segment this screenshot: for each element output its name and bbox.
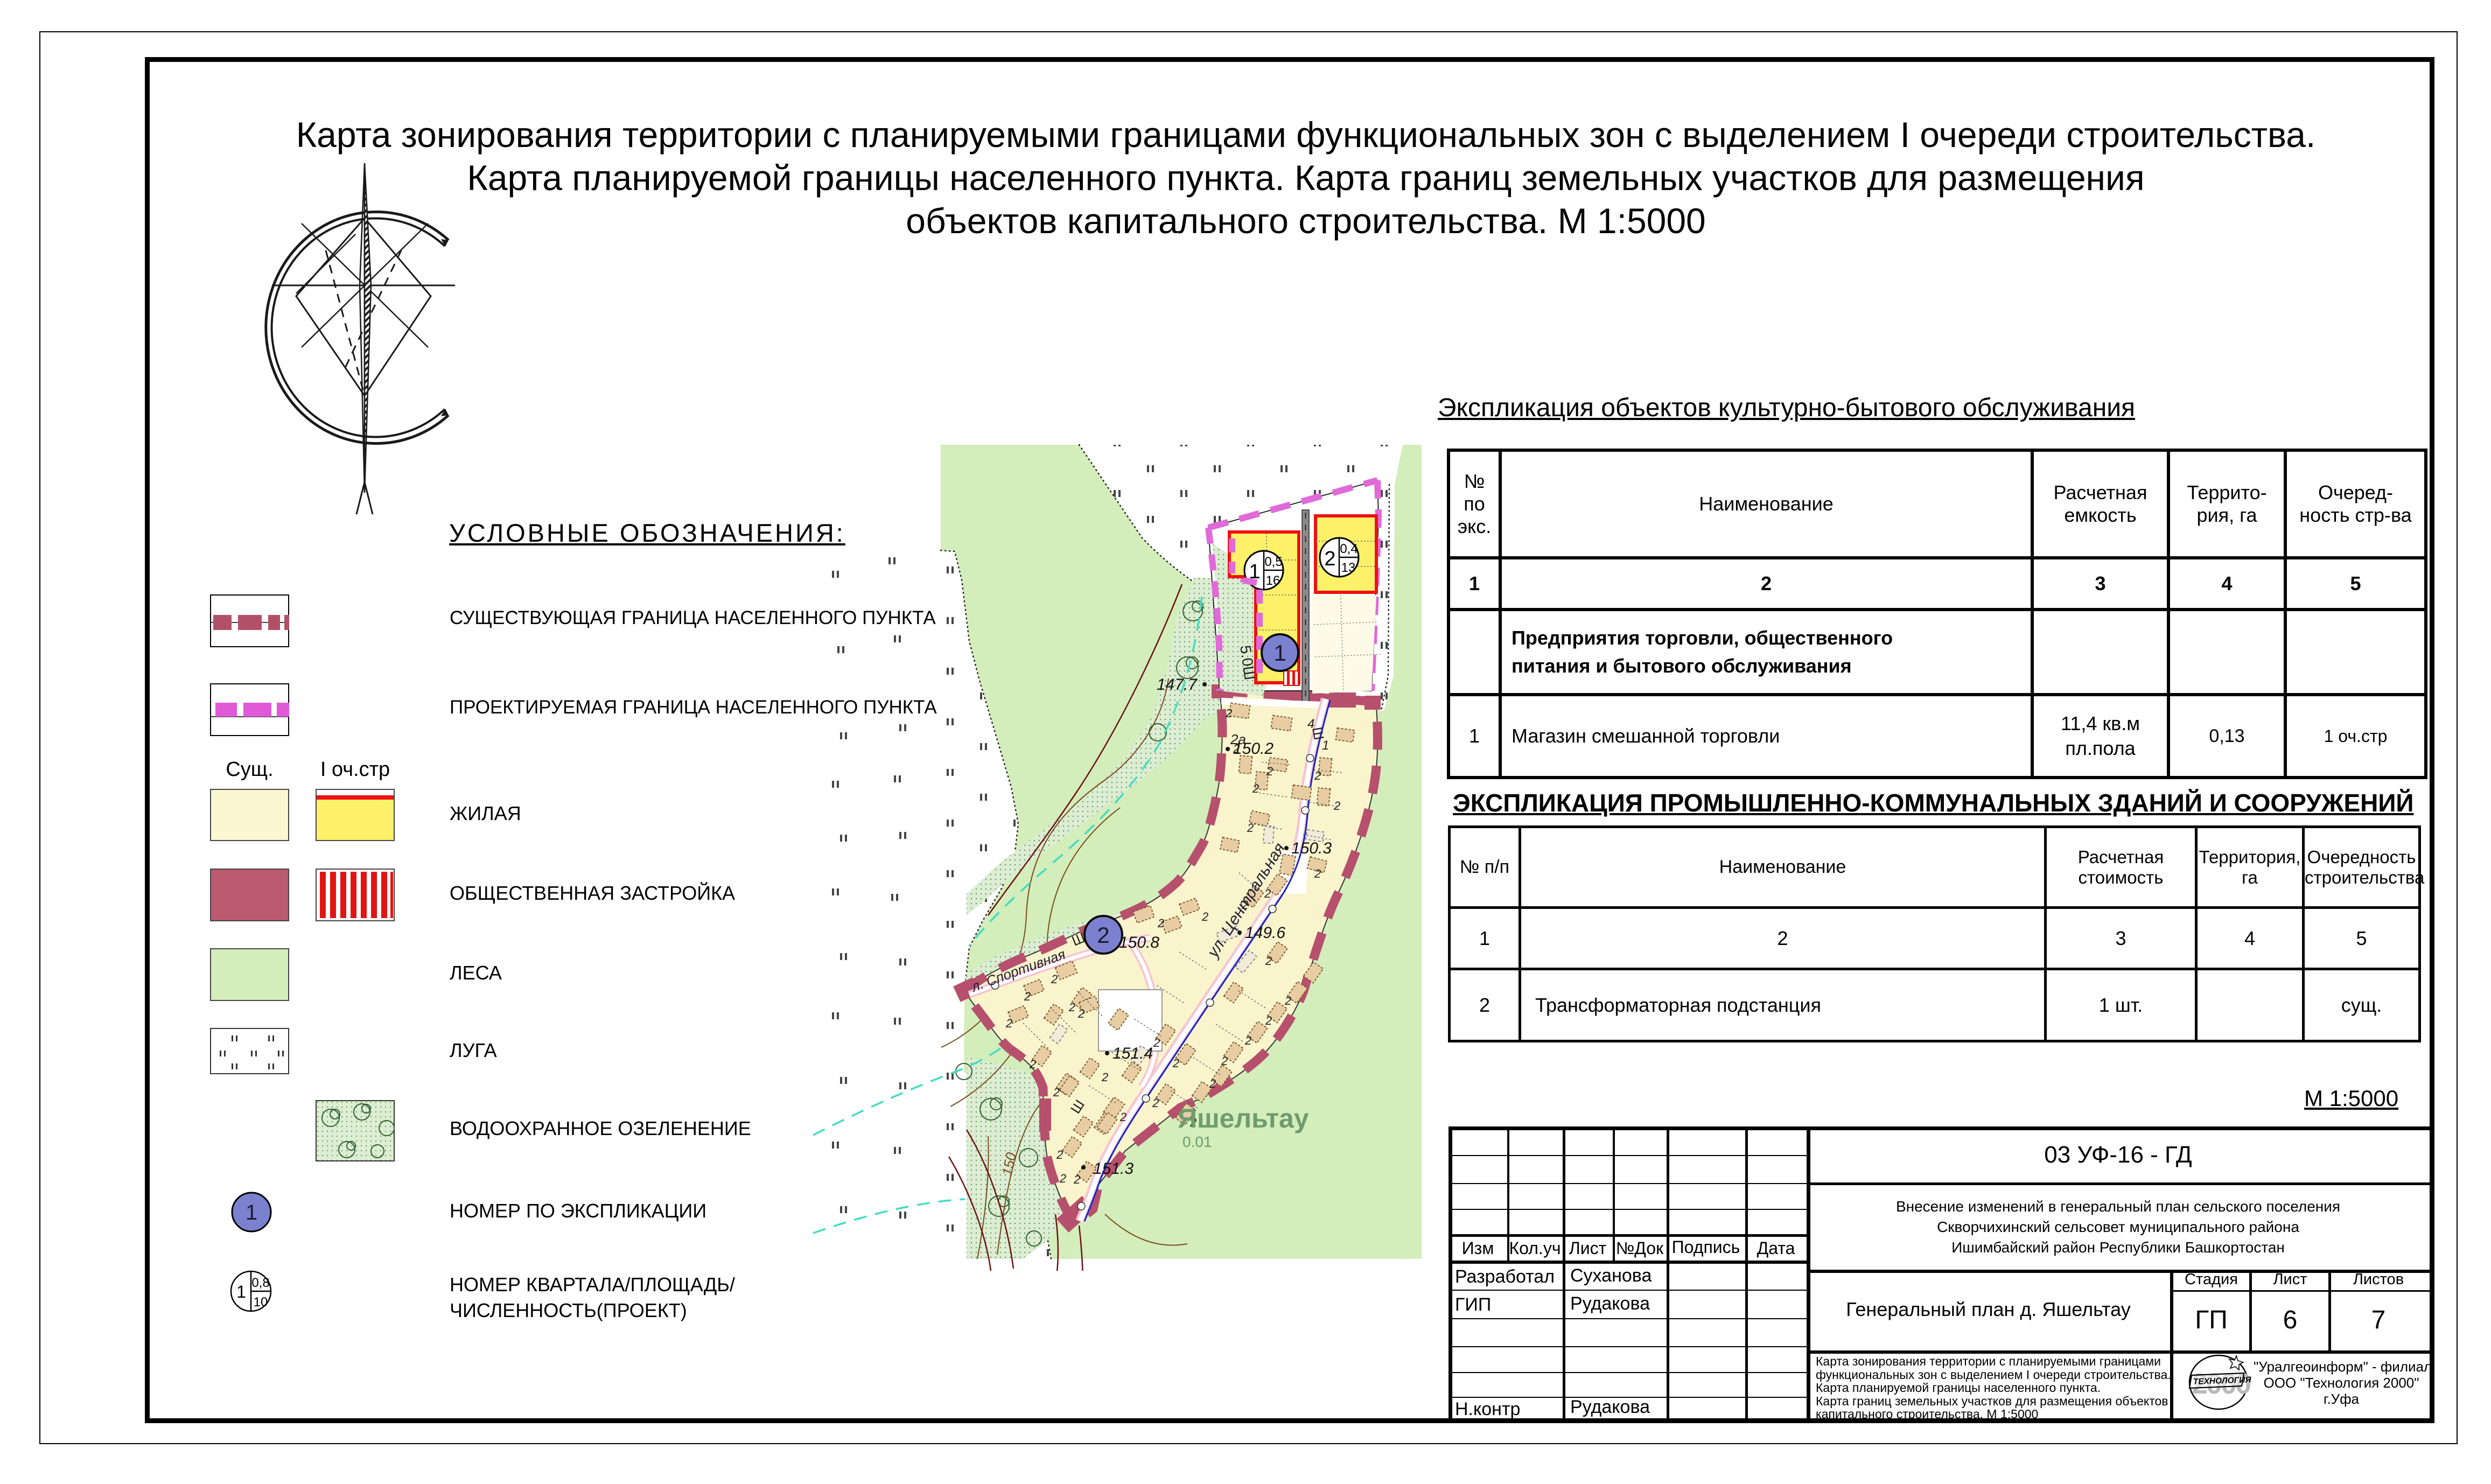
svg-text:150.8: 150.8 [1119,934,1159,951]
svg-text:2: 2 [1068,1000,1075,1014]
svg-text:2: 2 [1157,916,1164,930]
svg-text:2: 2 [1097,922,1109,948]
svg-text:Яшельтау: Яшельтау [1178,1103,1309,1133]
svg-text:2: 2 [1209,1077,1216,1090]
svg-text:2: 2 [1101,1070,1108,1084]
svg-text:2: 2 [1201,910,1208,923]
svg-text:2: 2 [1056,1148,1063,1161]
svg-text:13: 13 [1341,561,1356,575]
svg-text:2: 2 [1333,799,1340,813]
svg-text:2: 2 [1264,887,1271,900]
svg-text:1: 1 [1274,640,1286,666]
svg-text:0,5: 0,5 [1264,555,1282,569]
svg-text:2: 2 [1324,548,1335,570]
svg-text:10: 10 [254,1295,268,1310]
svg-text:2: 2 [1029,1058,1036,1071]
svg-text:147.7: 147.7 [1157,676,1198,694]
svg-text:2: 2 [1152,1096,1159,1110]
svg-text:0,4: 0,4 [1340,542,1358,556]
svg-text:2: 2 [1073,1173,1080,1186]
svg-text:1: 1 [236,1282,246,1301]
svg-text:2: 2 [1077,1007,1084,1020]
svg-text:2: 2 [1225,706,1232,720]
svg-text:2: 2 [1153,1036,1160,1049]
svg-text:150.3: 150.3 [1291,839,1332,857]
svg-text:2: 2 [1024,990,1031,1003]
svg-text:2: 2 [1053,1086,1060,1099]
svg-text:2: 2 [1172,1056,1179,1070]
svg-text:2: 2 [1247,821,1254,835]
svg-text:16: 16 [1266,573,1281,588]
svg-text:2: 2 [1265,954,1272,968]
svg-text:150.2: 150.2 [1233,740,1274,758]
svg-text:151.3: 151.3 [1093,1160,1133,1178]
svg-text:2: 2 [1221,1054,1228,1068]
svg-text:2: 2 [1266,765,1273,778]
svg-text:2: 2 [1314,769,1321,782]
svg-text:2: 2 [1119,1110,1126,1124]
svg-text:149.6: 149.6 [1245,924,1285,942]
svg-text:2: 2 [1059,1172,1066,1185]
svg-text:1: 1 [1322,738,1329,753]
svg-text:2: 2 [1244,1034,1251,1047]
svg-text:151.4: 151.4 [1112,1045,1153,1062]
svg-text:2: 2 [1284,994,1291,1007]
svg-text:2: 2 [1314,867,1321,880]
svg-text:1: 1 [246,1201,257,1224]
svg-text:2: 2 [1005,1017,1012,1030]
svg-text:0,8: 0,8 [251,1276,269,1290]
svg-text:0.01: 0.01 [1182,1133,1212,1150]
svg-text:2: 2 [1265,1014,1272,1027]
svg-text:2: 2 [1252,782,1259,795]
svg-text:2: 2 [1051,972,1058,986]
